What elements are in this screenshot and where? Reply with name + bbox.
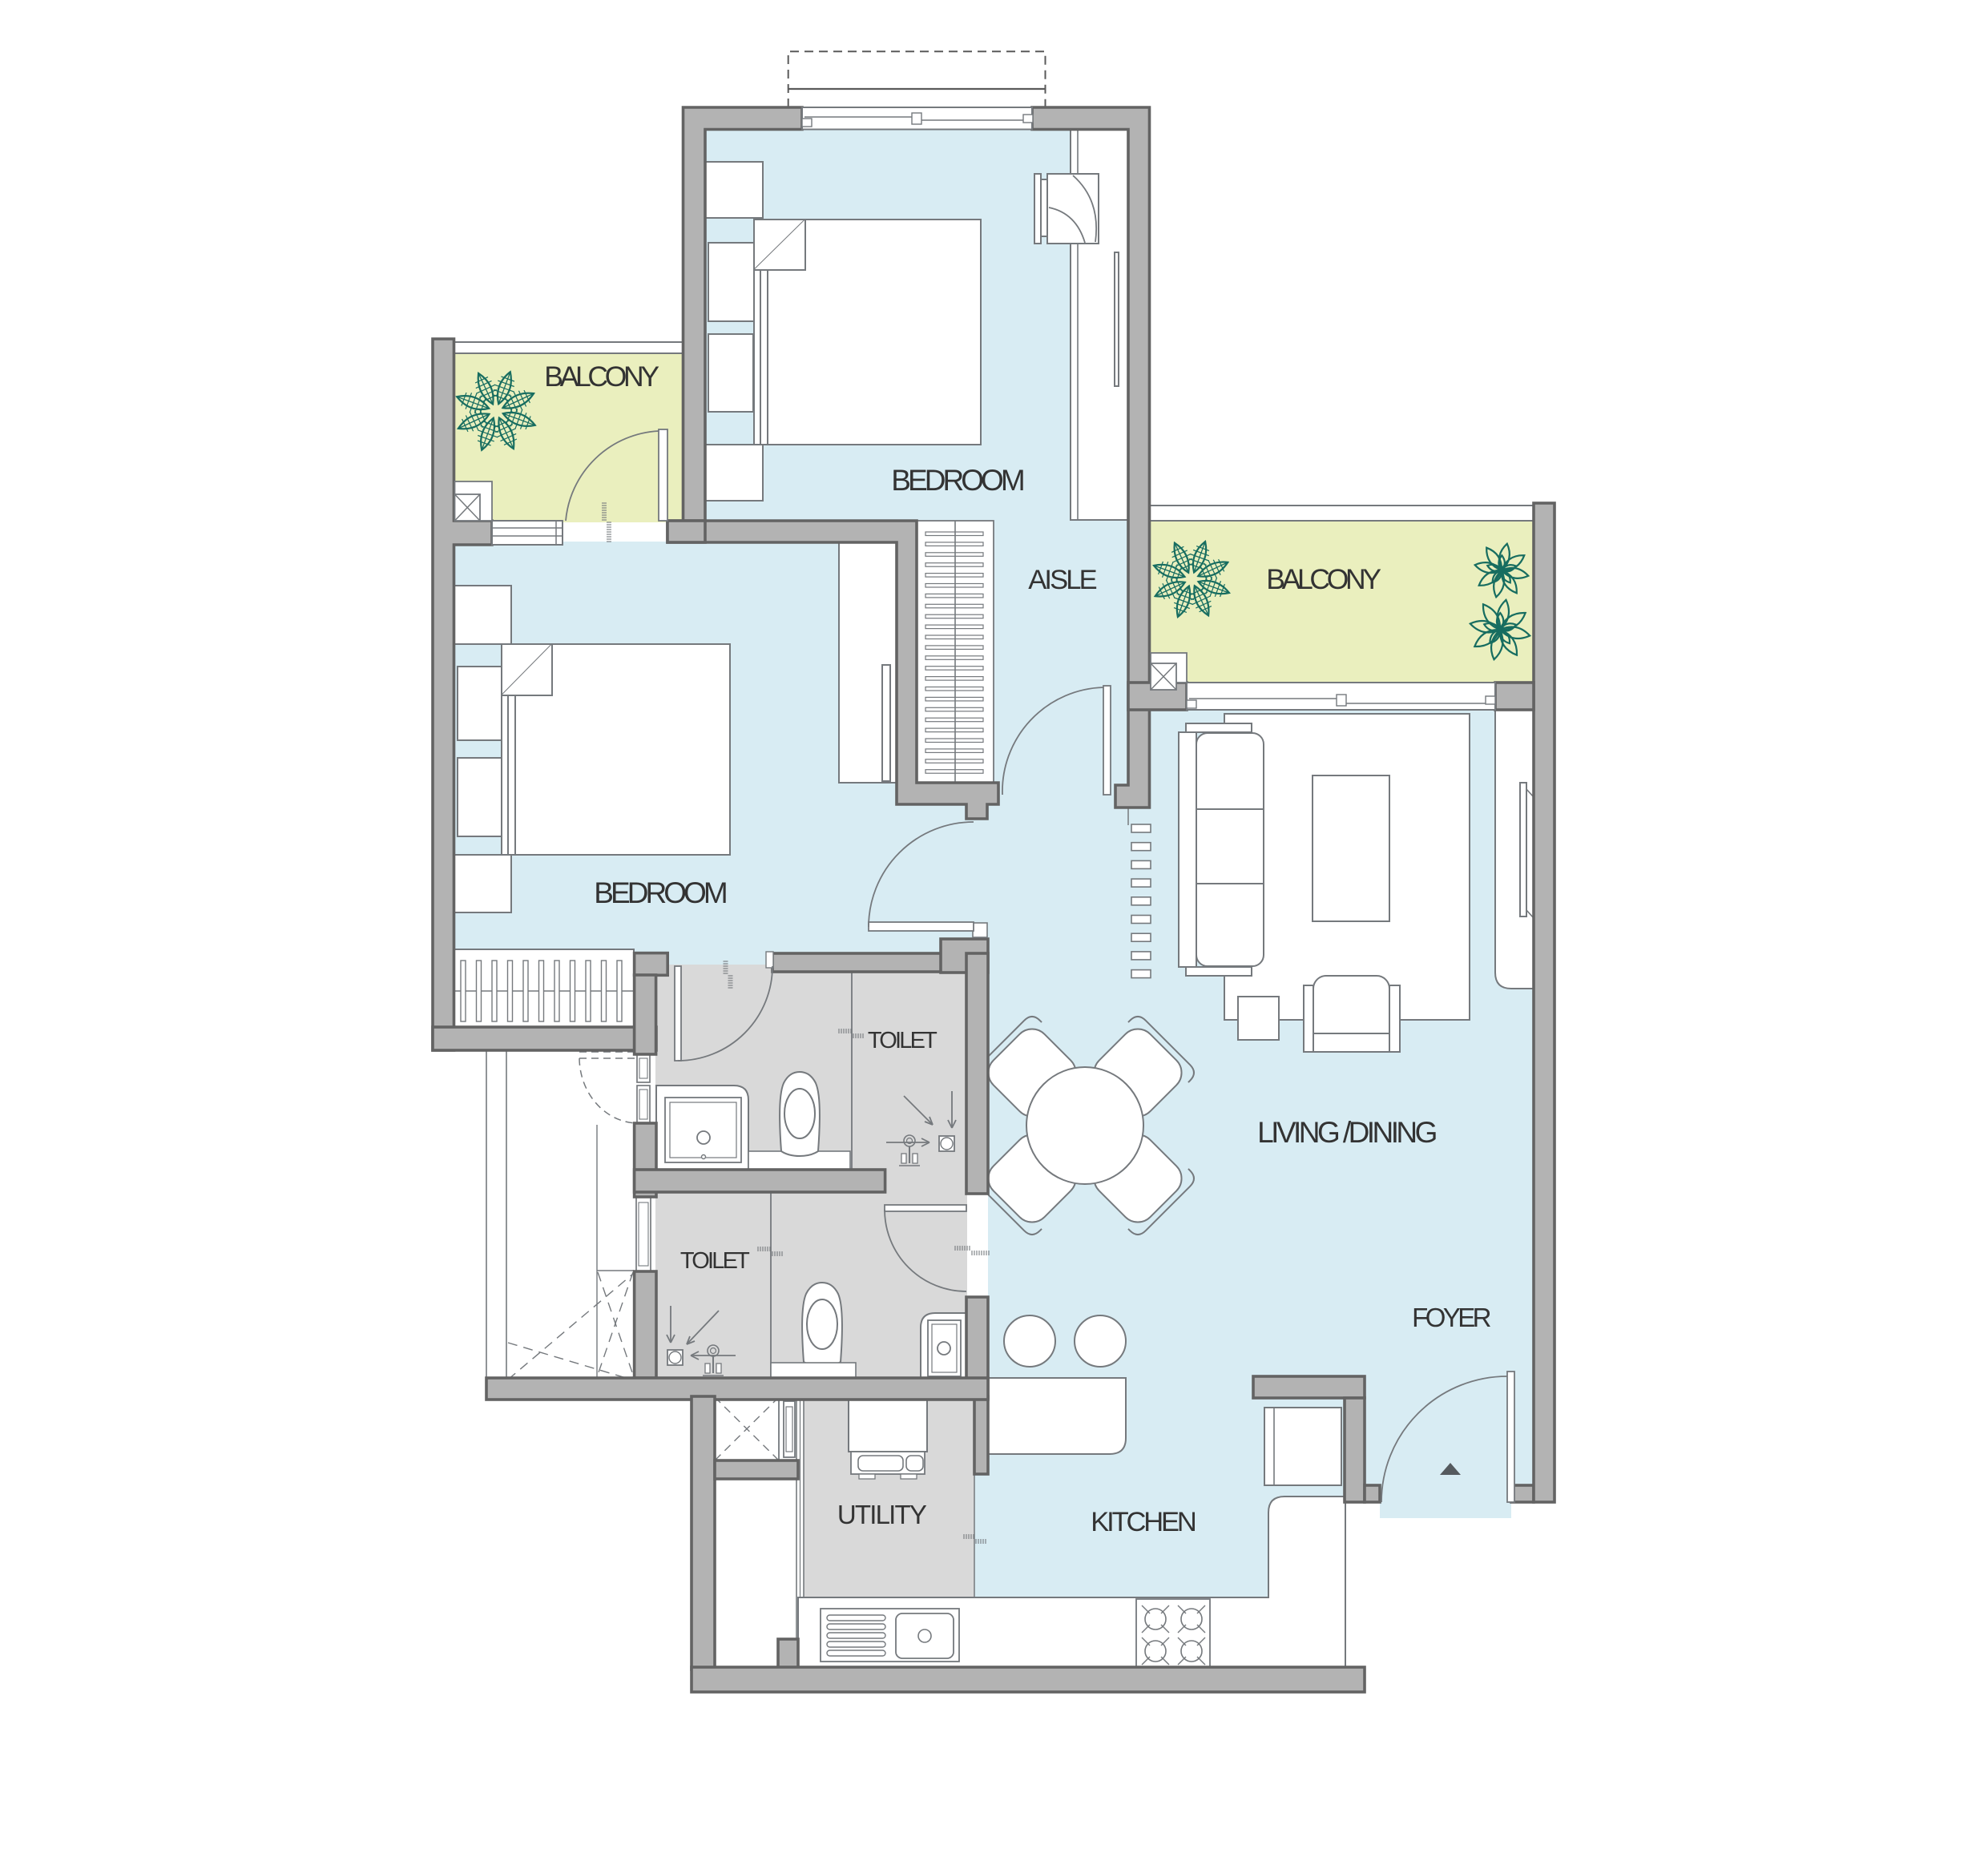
svg-text:BALCONY: BALCONY (544, 361, 659, 393)
svg-text:FOYER: FOYER (1412, 1303, 1490, 1332)
svg-text:TOILET: TOILET (680, 1248, 750, 1274)
svg-text:AISLE: AISLE (1028, 565, 1096, 595)
svg-text:BEDROOM: BEDROOM (594, 876, 726, 909)
svg-text:BALCONY: BALCONY (1266, 563, 1381, 595)
svg-text:BEDROOM: BEDROOM (891, 464, 1023, 497)
svg-text:KITCHEN: KITCHEN (1091, 1507, 1196, 1537)
svg-text:TOILET: TOILET (868, 1028, 938, 1053)
svg-text:UTILITY: UTILITY (837, 1500, 927, 1529)
svg-text:LIVING /DINING: LIVING /DINING (1257, 1116, 1436, 1149)
